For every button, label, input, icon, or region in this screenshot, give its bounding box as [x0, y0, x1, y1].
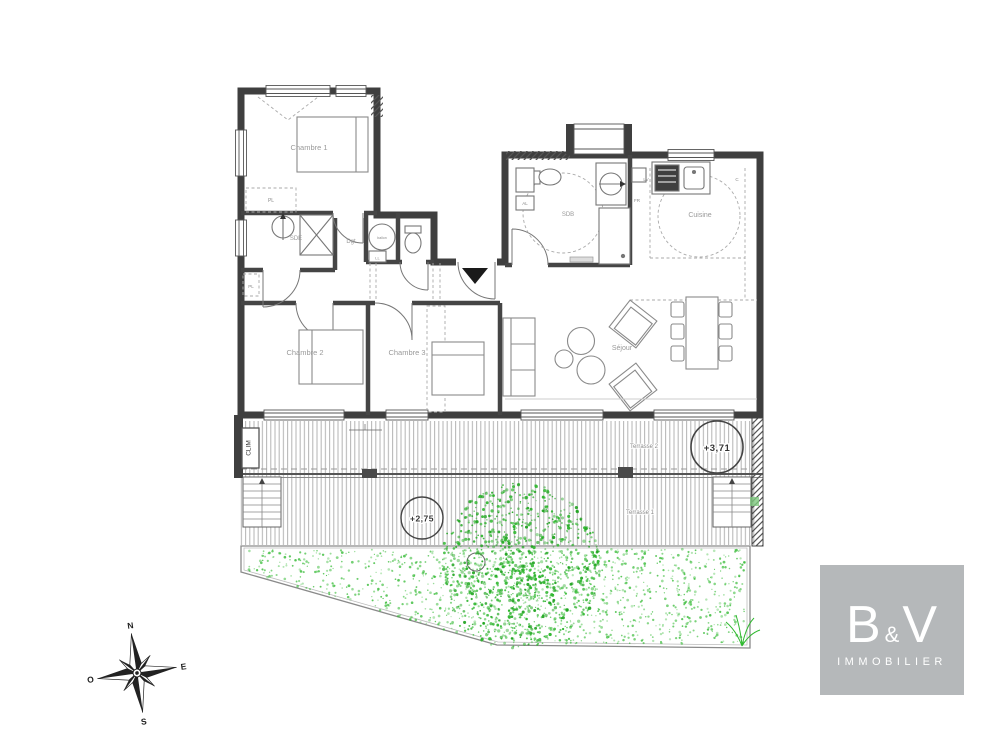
compass-east-label: E: [180, 661, 187, 672]
stair-left: [243, 477, 281, 527]
sofa: [503, 318, 535, 396]
al-label: AL: [522, 201, 528, 206]
bed-chambre3: [432, 342, 484, 395]
coffee-table: [555, 350, 573, 368]
cuisine-label: Cuisine: [688, 212, 711, 219]
agency-logo: B&V IMMOBILIER: [820, 565, 964, 695]
logo-letter-b: B: [846, 602, 882, 649]
terrasse1-label: Terrasse 1: [626, 510, 655, 516]
dining-table-set: [671, 297, 732, 369]
chambre3-label: Chambre 3: [388, 348, 425, 357]
bay-window: [566, 124, 632, 154]
sdb-label: SDB: [562, 212, 574, 218]
ballon-label: ballon: [377, 236, 387, 240]
bed-chambre2: [299, 330, 363, 384]
lv-label: LV: [643, 177, 648, 182]
sdb-toilet: [539, 169, 561, 185]
terrasse2-label: Terrasse 2: [630, 444, 659, 450]
coffee-table: [577, 356, 605, 384]
party-wall: [752, 418, 763, 546]
logo-monogram: B&V: [846, 602, 938, 649]
sdb-shower: [599, 208, 630, 264]
fr-label: FR: [634, 198, 641, 203]
placard-label: PL: [248, 284, 254, 289]
compass-west-label: O: [86, 674, 94, 685]
level-lower-label: +2,75: [410, 514, 434, 524]
coffee-table: [568, 328, 595, 355]
sejour-label: Séjour: [612, 345, 633, 352]
level-upper-label: +3,71: [704, 443, 731, 454]
railing-post: [362, 469, 377, 478]
sdb-cabinet: [516, 168, 534, 192]
chambre1-label: Chambre 1: [290, 143, 327, 152]
compass-north-label: N: [127, 620, 134, 631]
sde-label: SDE: [290, 236, 302, 242]
terrace-decking: [239, 421, 755, 545]
logo-letter-v: V: [902, 602, 938, 649]
logo-ampersand: &: [885, 625, 900, 645]
terrace: CLIM +3,71 +2,75 Terrasse 2 Terrasse 1: [234, 415, 763, 546]
compass-rose: N S E O: [80, 614, 194, 734]
clim-unit: CLIM: [242, 428, 259, 468]
dgt-label: Dgt: [346, 239, 356, 245]
compass-south-label: S: [140, 716, 147, 727]
clim-label: CLIM: [246, 440, 253, 456]
railing-post: [618, 467, 633, 478]
placard-label: PL: [268, 198, 274, 204]
wc-toilet: [405, 233, 421, 253]
chambre2-label: Chambre 2: [286, 348, 323, 357]
ll-label: LL: [375, 256, 380, 261]
garden: [241, 546, 760, 648]
logo-subtitle: IMMOBILIER: [837, 656, 947, 668]
apartment: Chambre 1 SDE Dgt SDB Cuisine Séjour Cha…: [236, 86, 761, 421]
wc-tank: [405, 226, 421, 233]
